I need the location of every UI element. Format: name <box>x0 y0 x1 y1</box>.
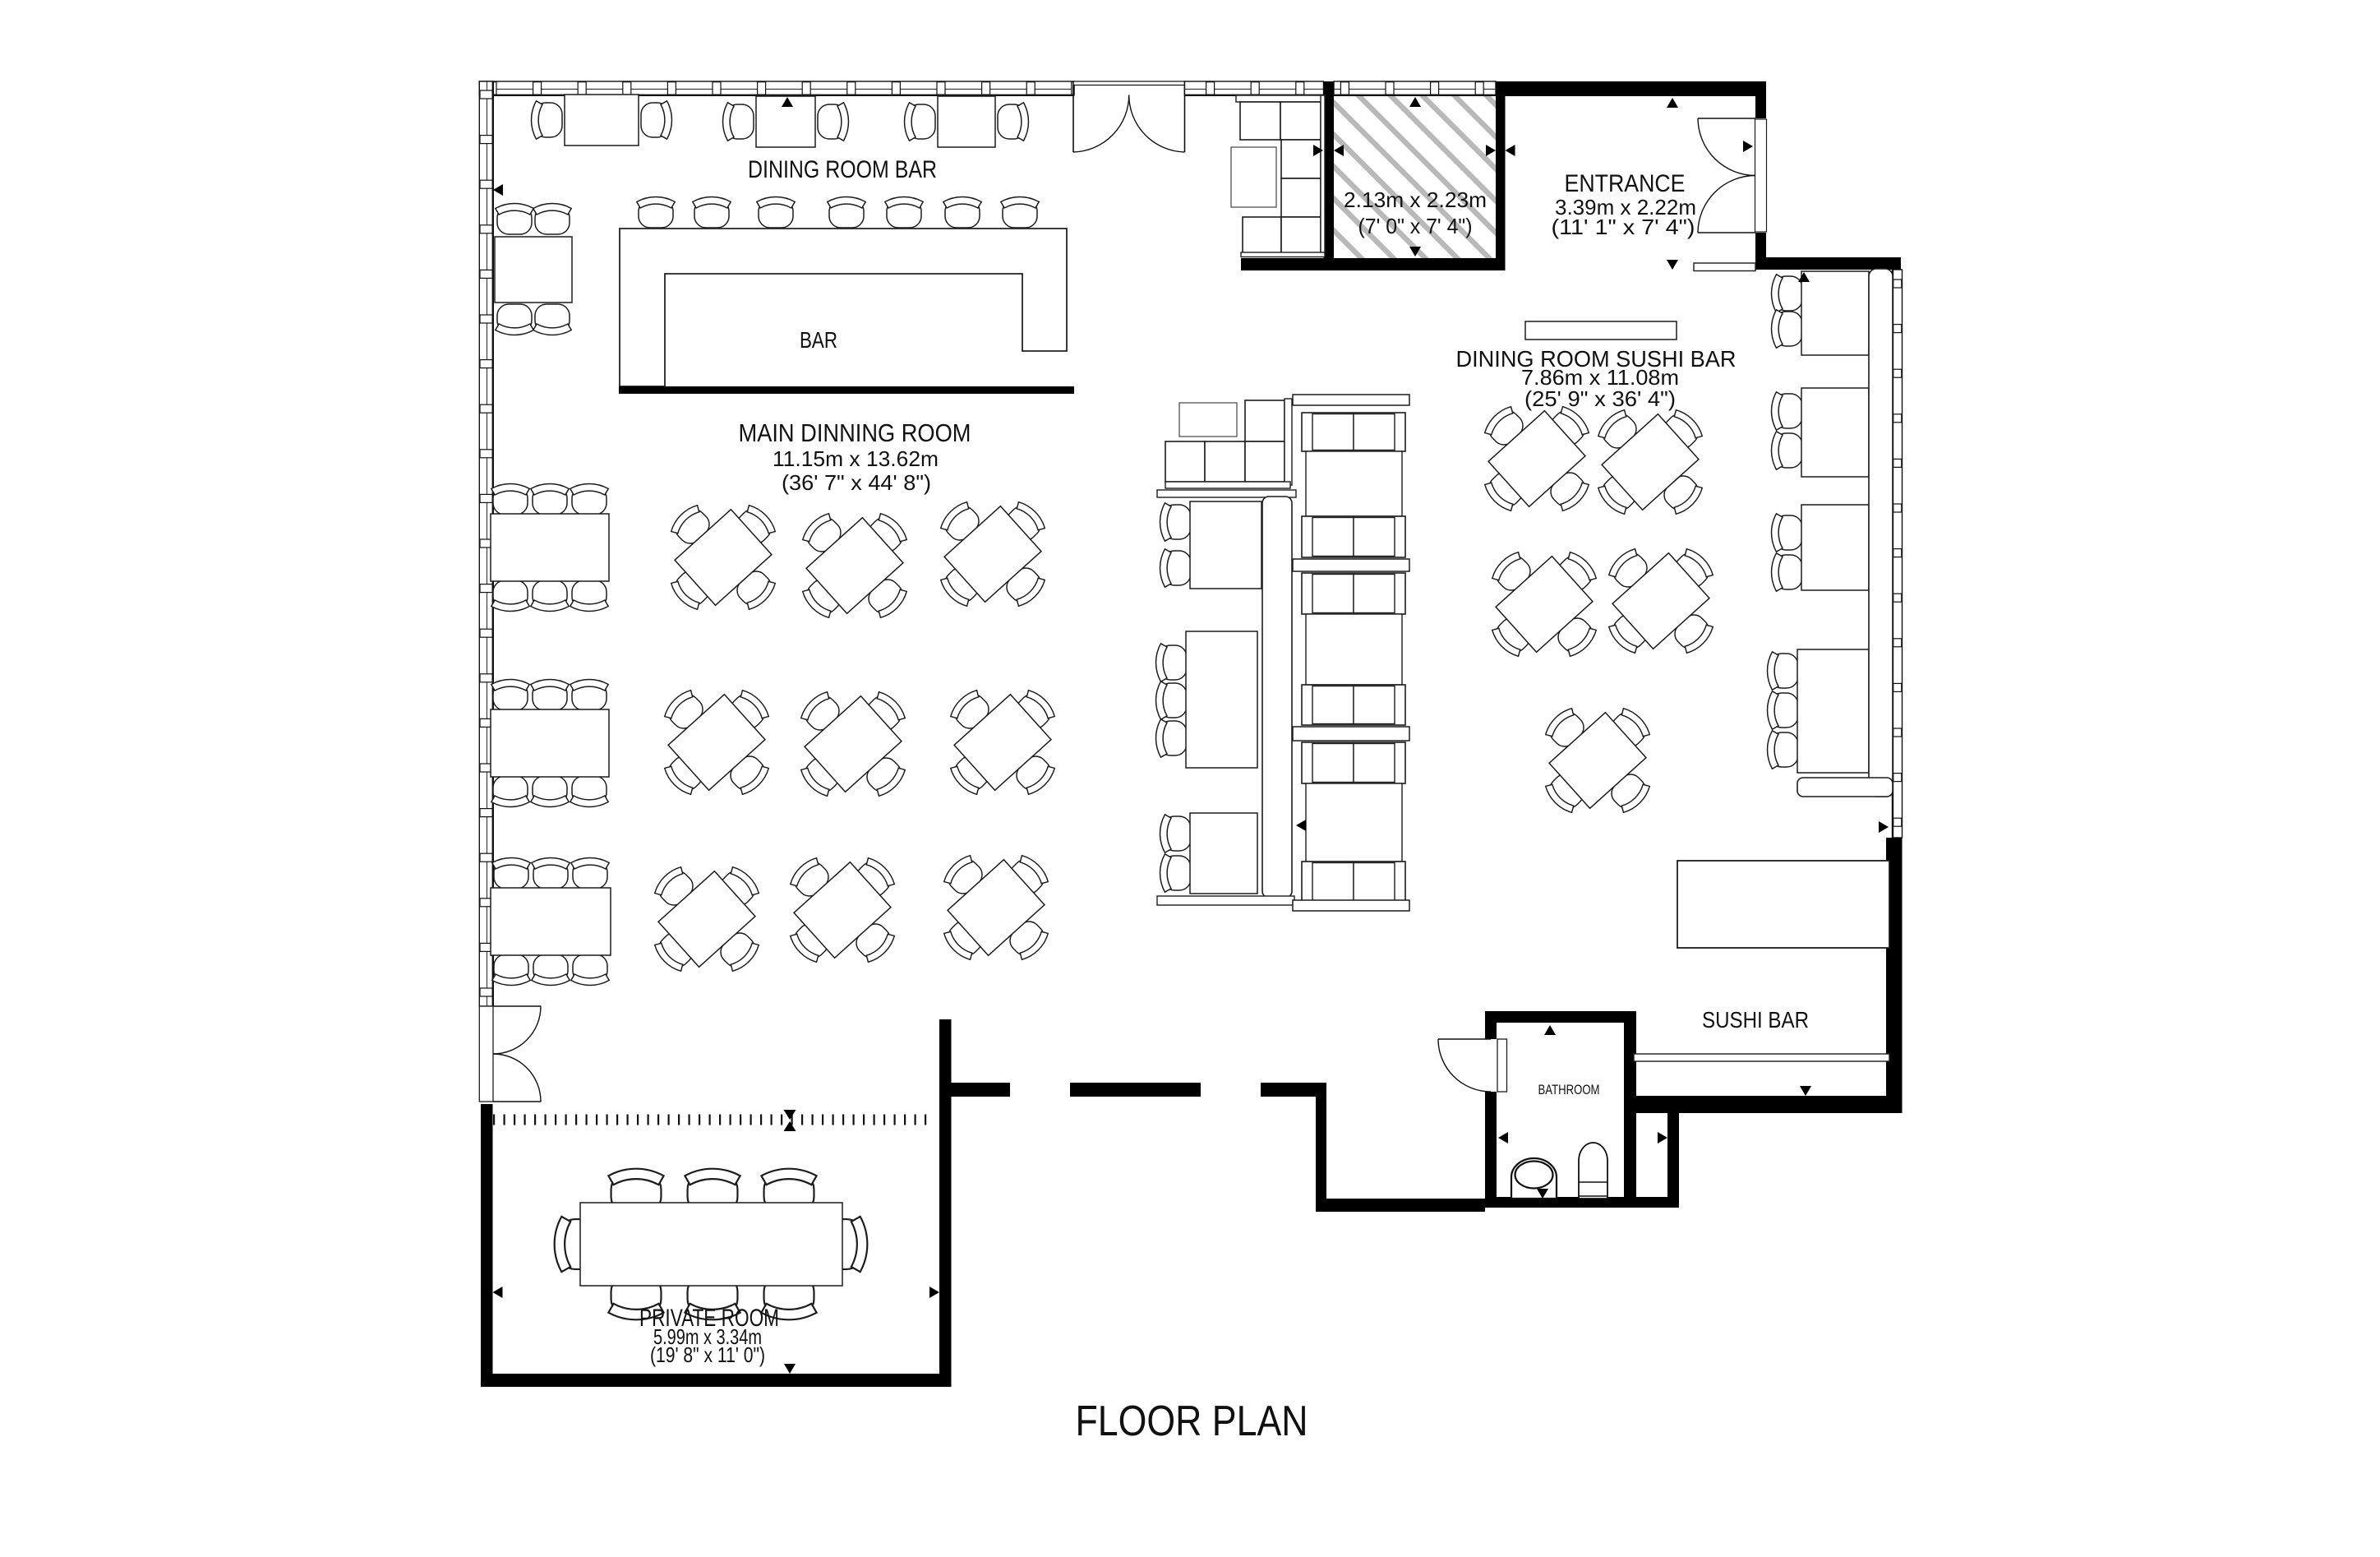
svg-text:FLOOR PLAN: FLOOR PLAN <box>1076 1398 1308 1445</box>
svg-text:SUSHI BAR: SUSHI BAR <box>1702 1007 1809 1033</box>
svg-text:MAIN DINNING ROOM: MAIN DINNING ROOM <box>739 418 971 447</box>
svg-text:DINING ROOM BAR: DINING ROOM BAR <box>748 156 937 183</box>
svg-text:ENTRANCE: ENTRANCE <box>1565 170 1686 197</box>
svg-text:(19' 8" x 11' 0"): (19' 8" x 11' 0") <box>650 1342 765 1367</box>
svg-text:BATHROOM: BATHROOM <box>1538 1082 1600 1097</box>
svg-text:2.13m x 2.23m: 2.13m x 2.23m <box>1344 187 1487 212</box>
svg-text:11.15m x 13.62m: 11.15m x 13.62m <box>773 446 939 471</box>
svg-text:(36' 7" x 44' 8"): (36' 7" x 44' 8") <box>782 470 931 495</box>
svg-text:(25' 9" x 36' 4"): (25' 9" x 36' 4") <box>1524 386 1676 411</box>
svg-text:(11' 1" x 7' 4"): (11' 1" x 7' 4") <box>1552 215 1695 239</box>
svg-text:BAR: BAR <box>800 327 837 353</box>
svg-text:(7' 0" x 7' 4"): (7' 0" x 7' 4") <box>1358 214 1473 238</box>
